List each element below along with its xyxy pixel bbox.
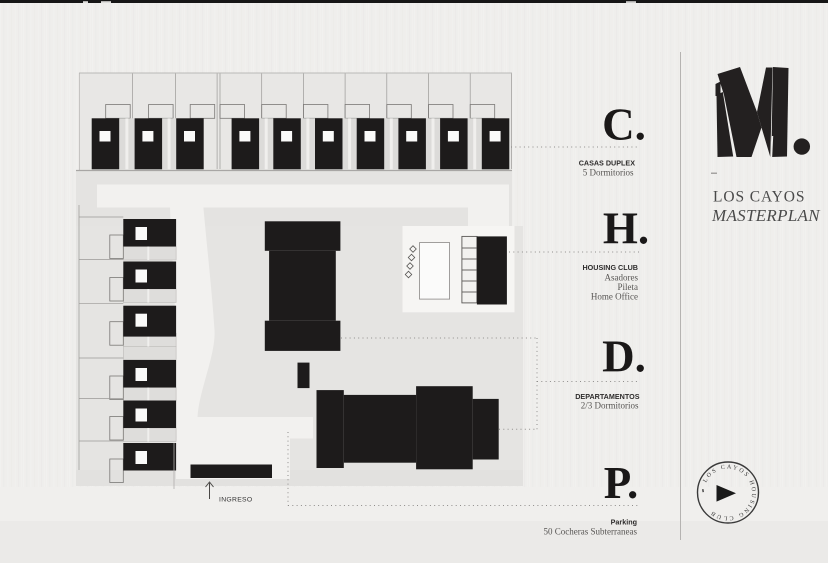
svg-text:Parking: Parking bbox=[611, 517, 637, 526]
svg-text:H.: H. bbox=[603, 203, 649, 253]
svg-text:HOUSING CLUB: HOUSING CLUB bbox=[582, 263, 638, 272]
svg-text:50 Cocheras Subterraneas: 50 Cocheras Subterraneas bbox=[544, 527, 638, 537]
svg-text:MASTERPLAN: MASTERPLAN bbox=[711, 206, 821, 225]
svg-text:P.: P. bbox=[604, 458, 639, 508]
svg-text:LOS CAYOS: LOS CAYOS bbox=[713, 189, 805, 206]
svg-text:2/3 Dormitorios: 2/3 Dormitorios bbox=[581, 401, 639, 411]
svg-text:Pileta: Pileta bbox=[618, 282, 639, 292]
svg-text:5 Dormitorios: 5 Dormitorios bbox=[583, 168, 634, 178]
svg-text:C.: C. bbox=[602, 99, 646, 149]
svg-text:CASAS DUPLEX: CASAS DUPLEX bbox=[579, 159, 636, 168]
svg-text:INGRESO: INGRESO bbox=[219, 497, 252, 504]
svg-text:Asadores: Asadores bbox=[605, 272, 639, 282]
svg-text:DEPARTAMENTOS: DEPARTAMENTOS bbox=[575, 392, 639, 401]
svg-text:D.: D. bbox=[602, 332, 646, 382]
svg-text:Home Office: Home Office bbox=[591, 292, 638, 302]
